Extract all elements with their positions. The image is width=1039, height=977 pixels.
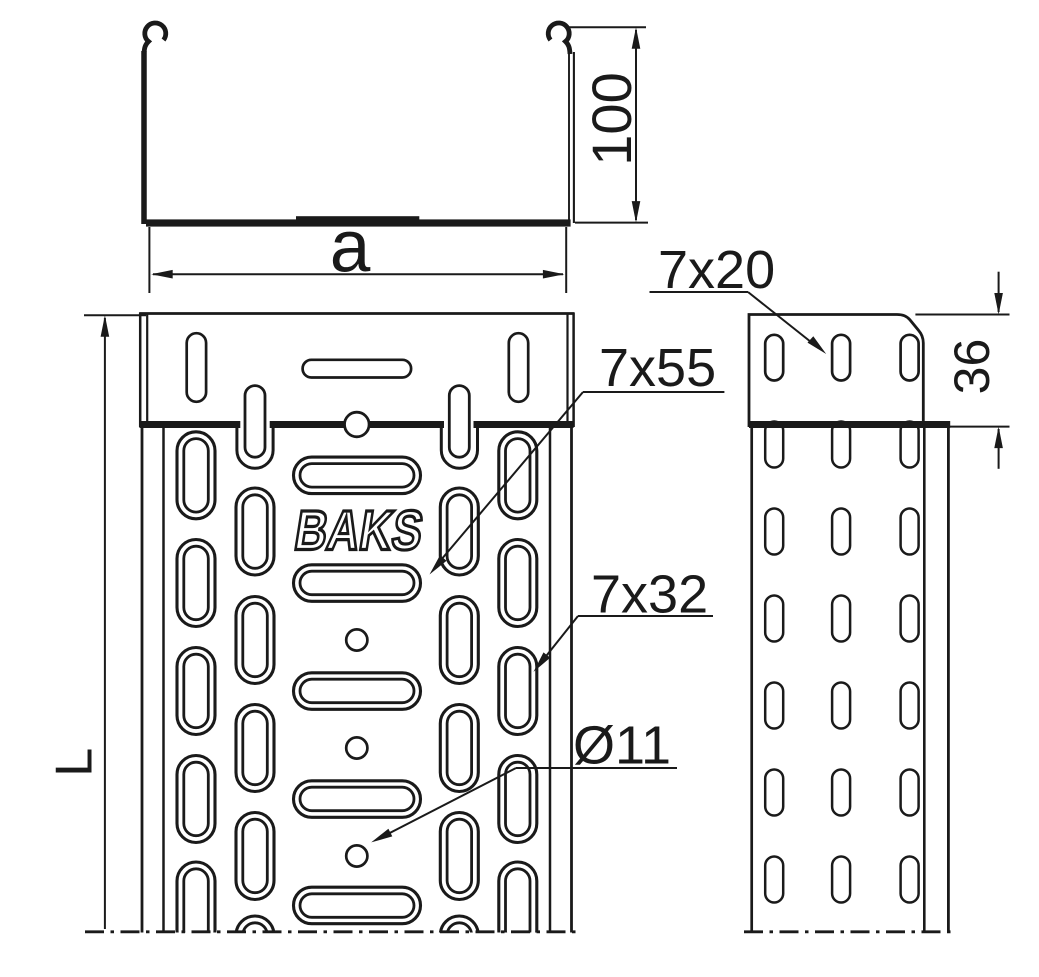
svg-text:100: 100 <box>580 72 643 165</box>
svg-text:36: 36 <box>944 339 1000 395</box>
svg-text:7x55: 7x55 <box>599 338 716 398</box>
svg-text:L: L <box>46 748 104 777</box>
svg-text:Ø11: Ø11 <box>573 716 671 776</box>
svg-text:a: a <box>330 207 371 288</box>
svg-text:BAKS: BAKS <box>291 499 428 561</box>
